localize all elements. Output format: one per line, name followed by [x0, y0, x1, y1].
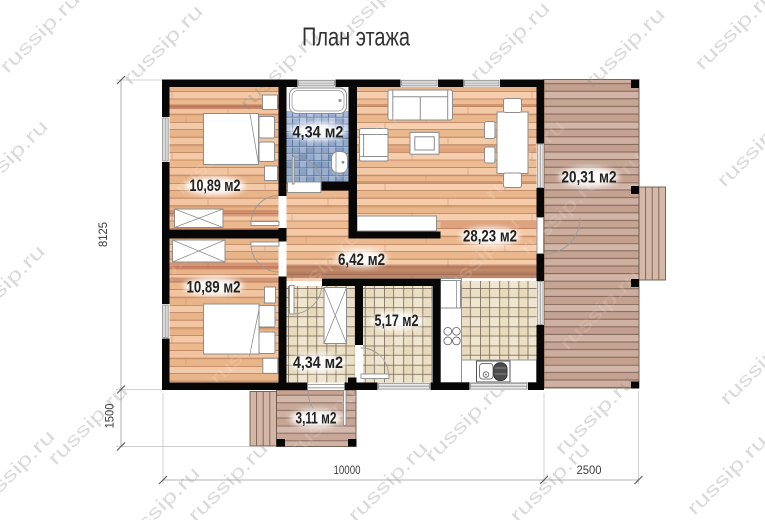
svg-text:1500: 1500 — [105, 404, 117, 429]
svg-text:4,34 м2: 4,34 м2 — [293, 354, 343, 372]
svg-text:10,89 м2: 10,89 м2 — [190, 177, 241, 195]
svg-text:20,31 м2: 20,31 м2 — [562, 169, 617, 187]
svg-text:5,17 м2: 5,17 м2 — [375, 312, 419, 330]
svg-text:8125: 8125 — [98, 222, 110, 247]
svg-text:10,89 м2: 10,89 м2 — [187, 279, 241, 297]
svg-text:28,23 м2: 28,23 м2 — [463, 228, 517, 246]
svg-text:6,42 м2: 6,42 м2 — [338, 251, 385, 269]
svg-text:4,34 м2: 4,34 м2 — [293, 124, 344, 142]
svg-text:10000: 10000 — [334, 465, 361, 477]
svg-text:План этажа: План этажа — [302, 22, 410, 52]
svg-text:2500: 2500 — [577, 465, 602, 477]
svg-text:3,11 м2: 3,11 м2 — [296, 410, 337, 428]
